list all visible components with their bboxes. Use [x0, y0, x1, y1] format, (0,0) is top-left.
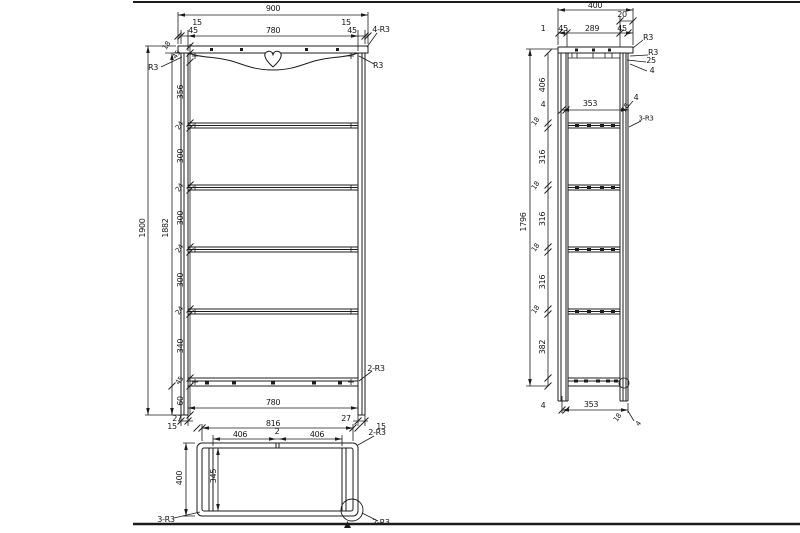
side-dim-353: 353	[583, 100, 597, 108]
front-dim-r3: R3	[373, 62, 383, 70]
side-dim-25: 25	[646, 57, 656, 65]
front-dim-780: 780	[266, 399, 280, 407]
bottom-view-linework	[174, 424, 378, 521]
front-dim-2-r3: 2-R3	[367, 365, 384, 373]
side-dim-20: 20	[617, 11, 627, 19]
bottom-dim-2-r3: 2-R3	[372, 519, 389, 527]
side-dim-45: 45	[617, 25, 627, 33]
side-dim-316: 316	[539, 275, 547, 289]
side-dim-45: 45	[558, 25, 568, 33]
drawing-canvas: 900151545780454-R31845R3R319001882356243…	[0, 0, 800, 533]
front-dim-r3: R3	[148, 64, 158, 72]
bottom-dim-406: 406	[310, 431, 324, 439]
sheet-border-lines	[133, 2, 800, 524]
front-dim-45: 45	[188, 27, 198, 35]
side-dim-289: 289	[585, 25, 599, 33]
side-dim-1796: 1796	[520, 212, 528, 231]
front-dim-60: 60	[177, 396, 185, 406]
front-dim-356: 356	[177, 85, 185, 99]
side-dim-353: 353	[584, 401, 598, 409]
side-dim-400: 400	[588, 2, 602, 10]
front-dim-300: 300	[177, 211, 185, 225]
front-dim-1900: 1900	[139, 218, 147, 237]
side-dim-3-r3: 3-R3	[638, 116, 653, 123]
side-dim-4: 4	[541, 101, 546, 109]
technical-drawing-linework	[0, 0, 800, 533]
front-dim-900: 900	[266, 5, 280, 13]
front-dim-45: 45	[347, 27, 357, 35]
side-dim-406: 406	[539, 78, 547, 92]
side-dim-1: 1	[541, 25, 546, 33]
front-dim-27: 27	[341, 415, 351, 423]
front-dim-1882: 1882	[162, 218, 170, 237]
side-dim-382: 382	[539, 340, 547, 354]
side-dim-316: 316	[539, 212, 547, 226]
bottom-dim-15: 15	[167, 423, 177, 431]
front-dim-340: 340	[177, 339, 185, 353]
dimension-arrowheads	[146, 8, 633, 516]
side-dim-r3: R3	[643, 34, 653, 42]
side-dim-4: 4	[650, 67, 655, 75]
front-dim-780: 780	[266, 27, 280, 35]
bottom-dim-2-r3: 2-R3	[368, 429, 385, 437]
bottom-dim-345: 345	[210, 469, 218, 483]
bottom-dim-406: 406	[233, 431, 247, 439]
front-dim-4-r3: 4-R3	[372, 26, 389, 34]
bottom-dim-400: 400	[176, 471, 184, 485]
front-dim-300: 300	[177, 273, 185, 287]
side-dim-4: 4	[541, 402, 546, 410]
front-dim-300: 300	[177, 149, 185, 163]
bottom-dim-3-r3: 3-R3	[157, 516, 174, 524]
bottom-dim-2: 2	[275, 428, 280, 436]
side-dim-316: 316	[539, 150, 547, 164]
front-view-section-marks	[205, 48, 342, 385]
side-dim-4: 4	[634, 94, 639, 102]
